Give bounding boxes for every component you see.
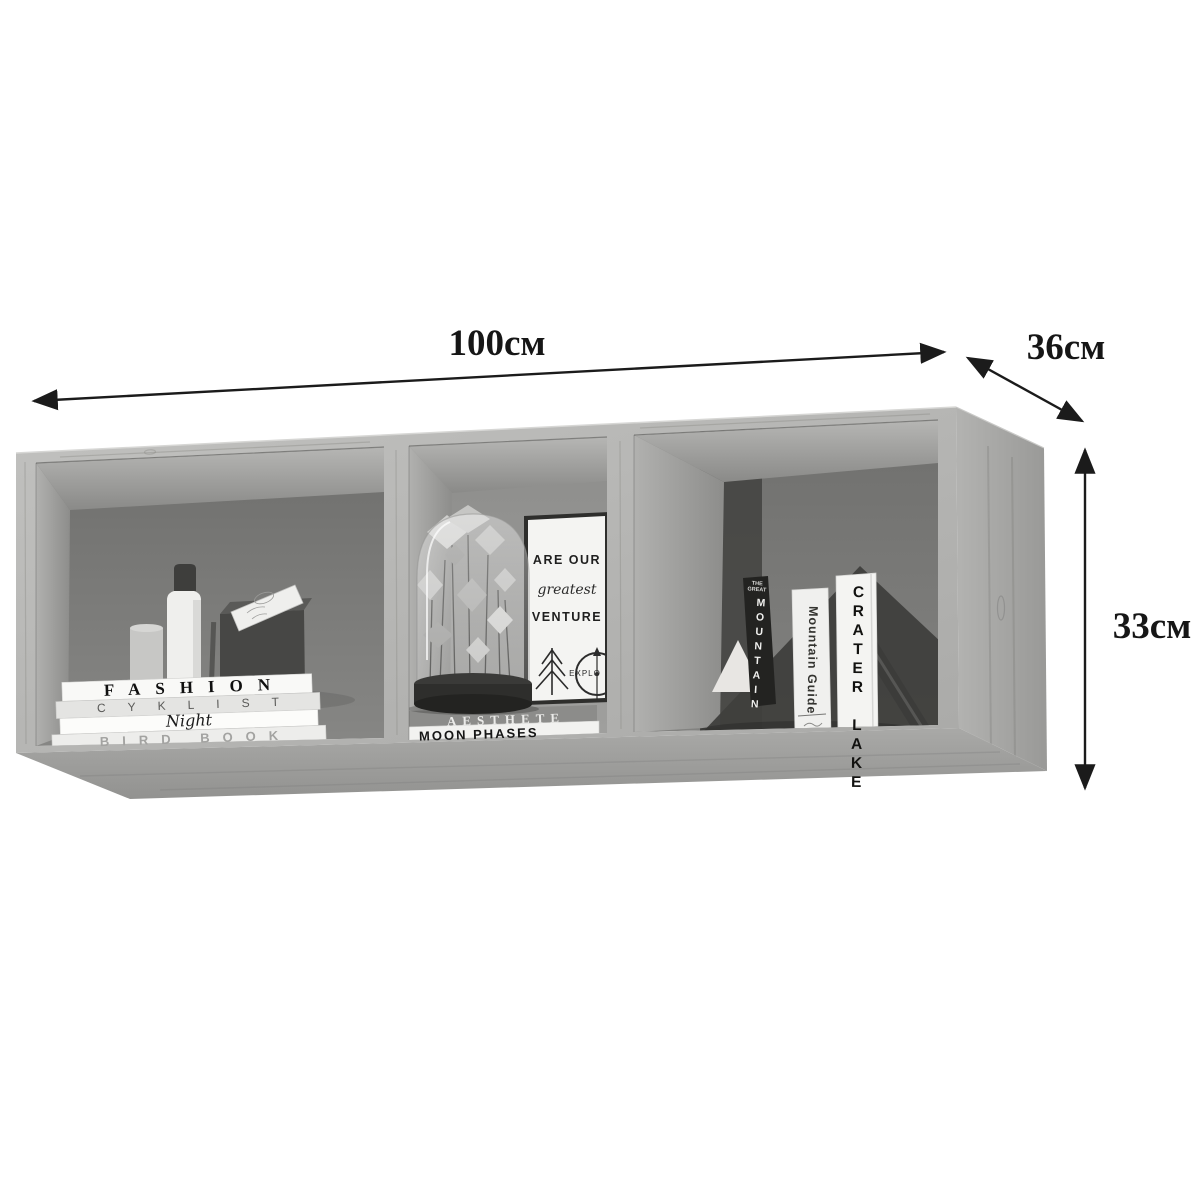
poster-line-venture: VENTURE <box>531 610 603 624</box>
poster-badge-explore: EXPLO <box>566 669 604 678</box>
shelf-right-side-panel <box>956 407 1047 771</box>
book-title-crater-lake: CRATER LAKE <box>838 584 876 776</box>
depth-dimension-label: 36см <box>986 326 1146 369</box>
width-dimension-label: 100см <box>377 322 617 365</box>
dome-glass <box>417 514 529 692</box>
left-wall <box>634 435 724 732</box>
book-title-mountain-guide: Mountain Guide <box>796 606 829 757</box>
poster-line-greatest: greatest <box>529 582 605 598</box>
glass-dome <box>407 505 539 715</box>
poster-line-are-our: ARE OUR <box>531 553 603 567</box>
shelf-illustration <box>0 0 1200 1200</box>
dome-base <box>414 673 532 714</box>
height-dimension-label: 33см <box>1072 605 1200 648</box>
spray-bottle-cap <box>174 564 196 591</box>
book-series-the-great: THE GREAT <box>746 580 769 594</box>
product-dimension-diagram: 100см 36см 33см FASHION CYKLIST Night BI… <box>0 0 1200 1200</box>
